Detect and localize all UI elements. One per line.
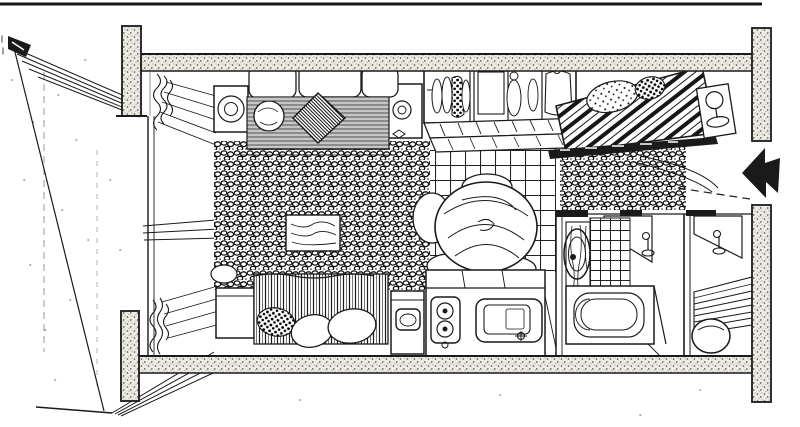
sofa-side-table-left <box>214 86 248 132</box>
bathtub <box>566 286 666 344</box>
right-wall-column <box>752 205 771 402</box>
nightstand <box>216 288 254 338</box>
floor-plan-canvas <box>0 0 800 427</box>
column-bottom-left <box>121 311 139 401</box>
column-top-left <box>122 26 141 116</box>
top-wall-band <box>140 55 753 71</box>
bedside-table <box>696 84 735 138</box>
round-dining-table <box>435 182 537 272</box>
column-top-right <box>752 28 771 141</box>
round-stool <box>692 319 730 353</box>
floor-plan-sketch <box>0 0 800 427</box>
floor-cushion <box>211 265 237 283</box>
bottom-wall-band <box>139 356 753 373</box>
round-pillow <box>254 101 284 131</box>
tiled-bath-wall <box>590 218 630 290</box>
shag-rug <box>211 141 430 291</box>
